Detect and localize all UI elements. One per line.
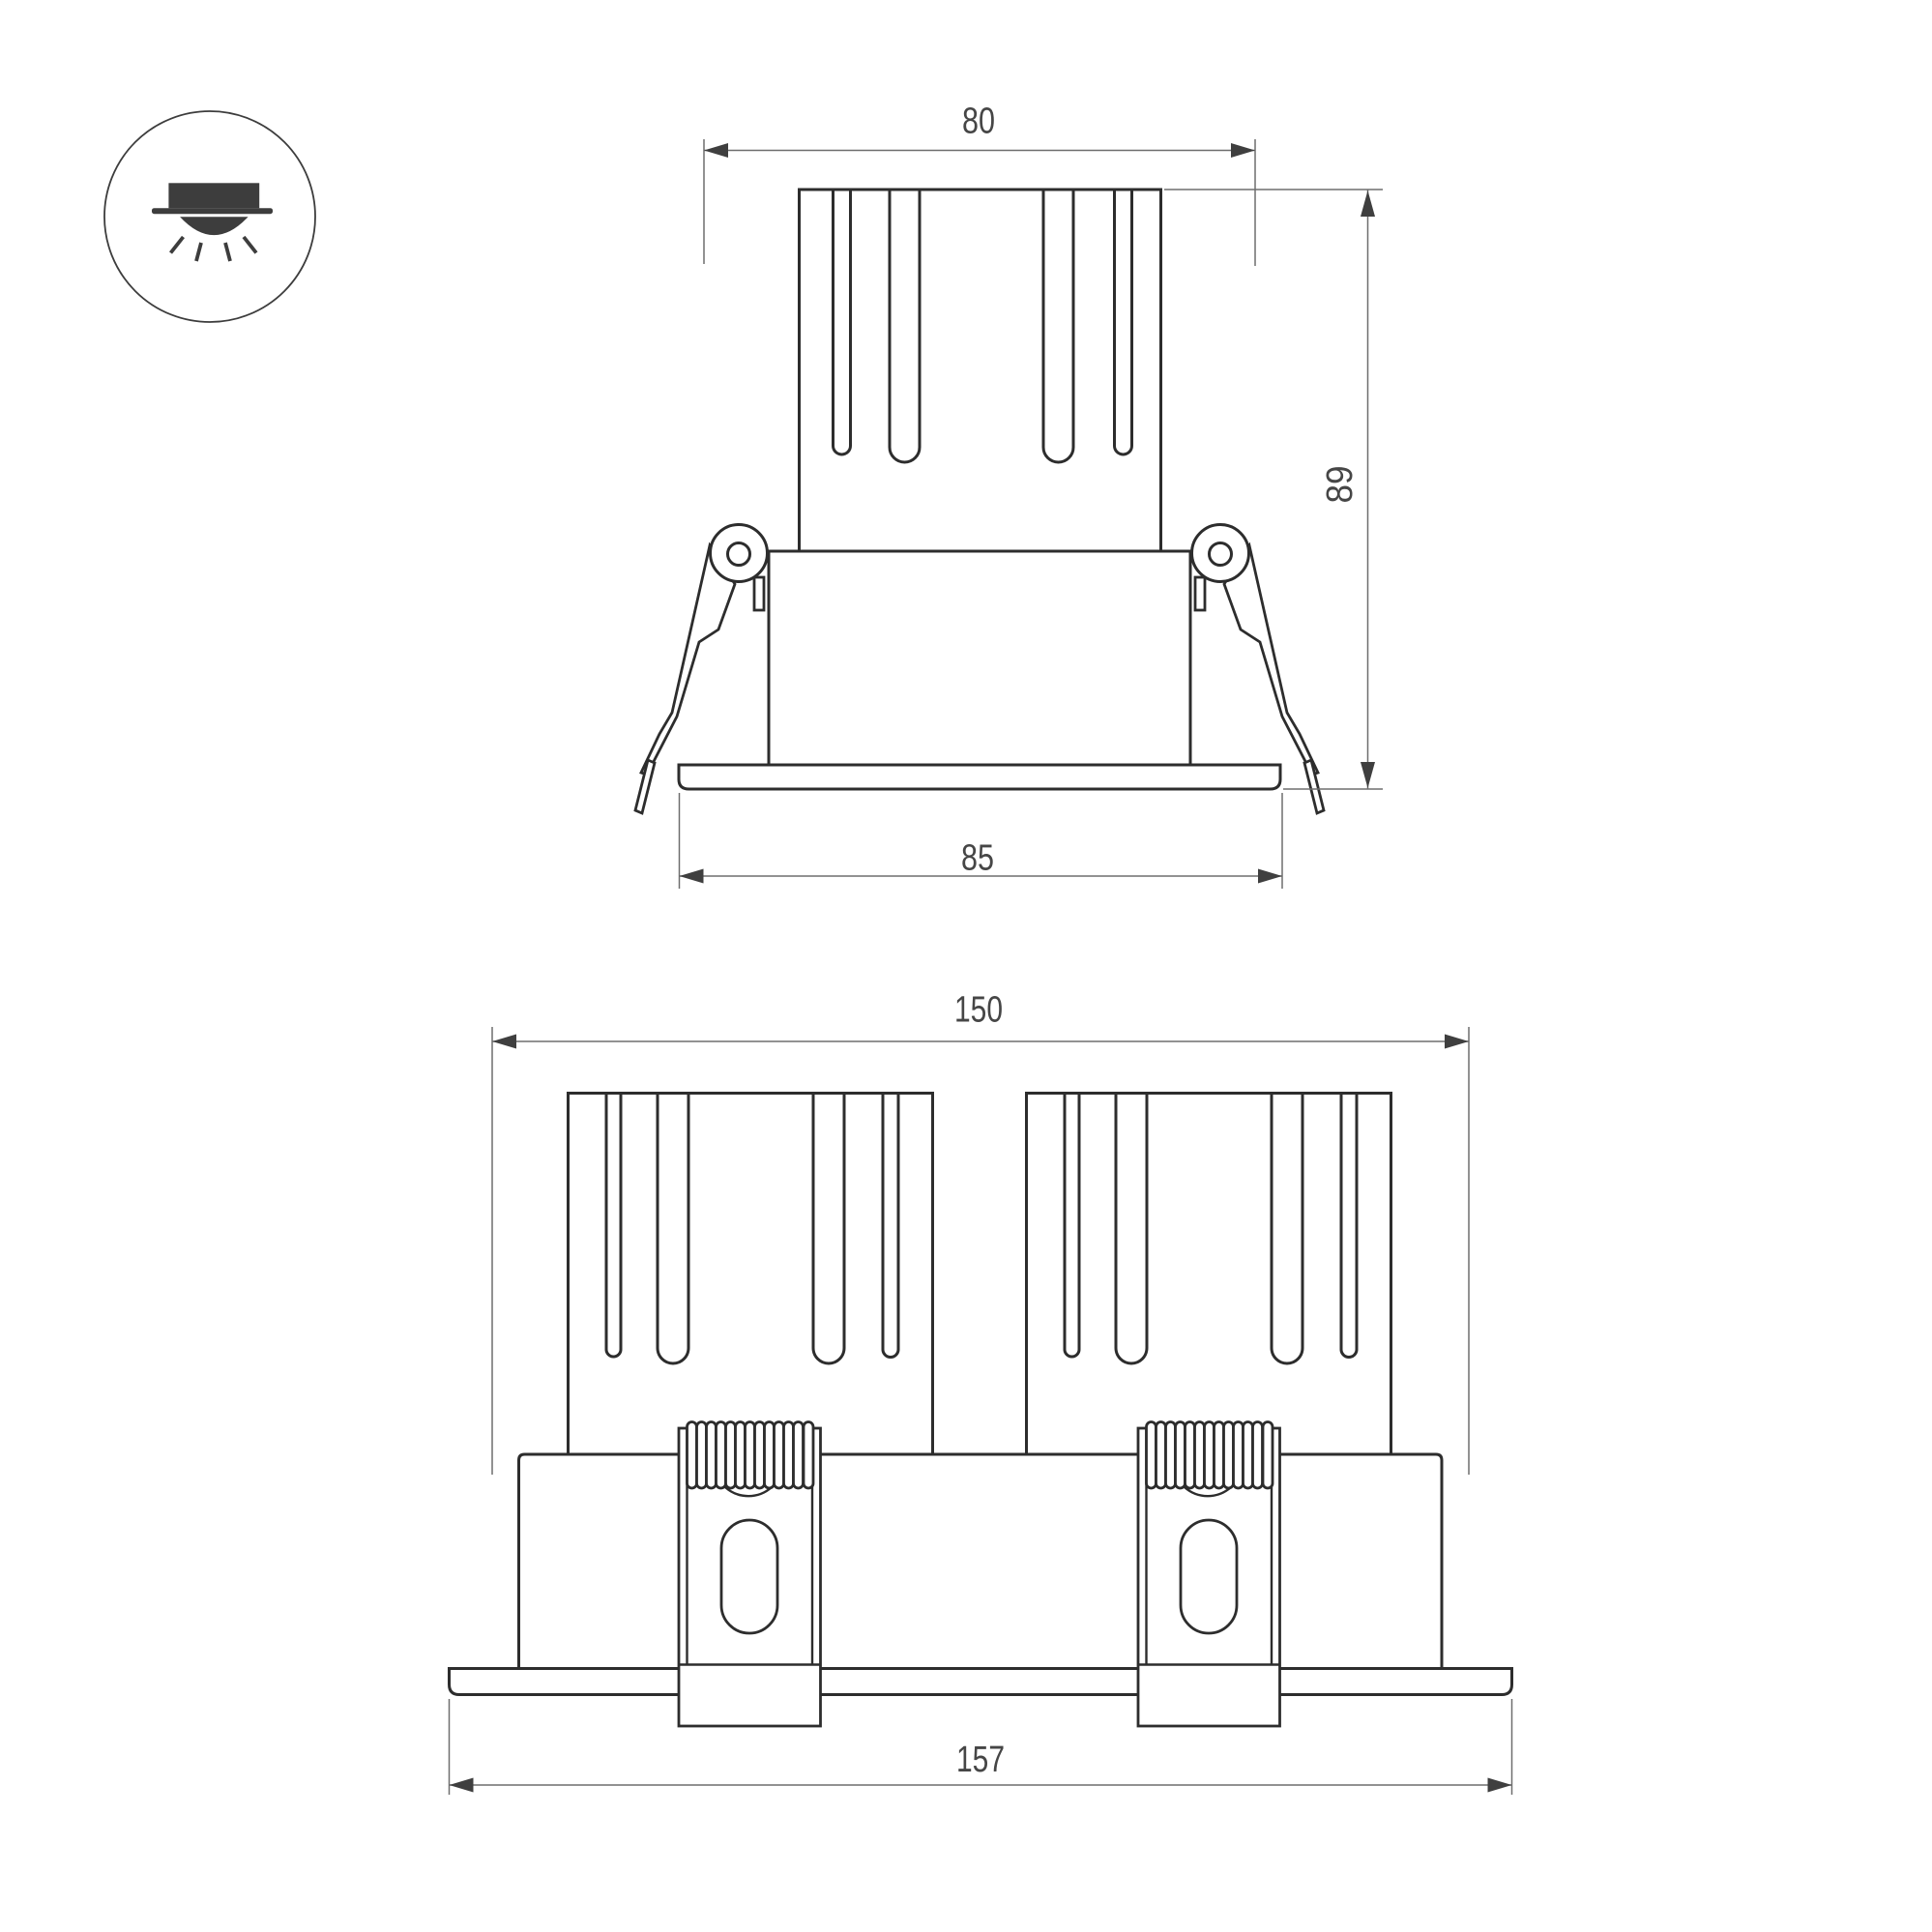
svg-text:89: 89 [1320, 466, 1361, 504]
svg-text:85: 85 [961, 838, 994, 879]
svg-text:157: 157 [956, 1740, 1005, 1780]
svg-text:150: 150 [954, 990, 1003, 1031]
svg-text:80: 80 [962, 102, 995, 142]
